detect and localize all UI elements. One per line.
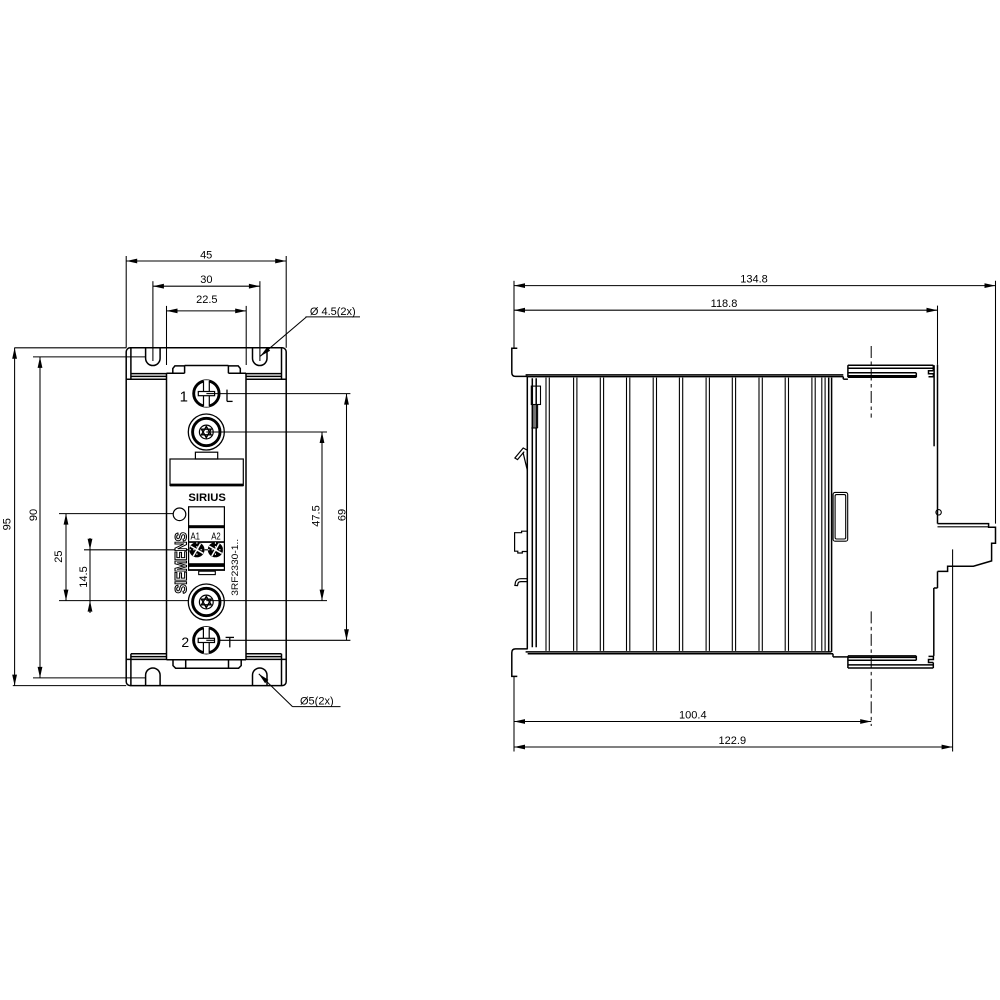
svg-text:14.5: 14.5 (78, 566, 90, 587)
svg-text:47.5: 47.5 (311, 505, 323, 526)
svg-text:118.8: 118.8 (711, 298, 738, 310)
svg-text:SIRIUS: SIRIUS (188, 492, 226, 504)
svg-text:100.4: 100.4 (679, 710, 707, 722)
svg-text:22.5: 22.5 (196, 294, 217, 306)
svg-text:95: 95 (2, 518, 14, 530)
svg-text:1: 1 (180, 389, 188, 406)
svg-text:Ø5(2x): Ø5(2x) (300, 696, 334, 708)
svg-text:122.9: 122.9 (719, 735, 747, 747)
svg-text:3RF2330-1..: 3RF2330-1.. (230, 539, 241, 596)
svg-text:Ø 4.5(2x): Ø 4.5(2x) (310, 306, 356, 318)
svg-text:A1: A1 (190, 532, 200, 543)
svg-text:45: 45 (200, 250, 212, 262)
svg-text:69: 69 (337, 509, 349, 521)
svg-text:90: 90 (28, 509, 40, 521)
svg-text:134.8: 134.8 (740, 274, 768, 286)
svg-text:A2: A2 (211, 532, 221, 543)
svg-text:SIEMENS: SIEMENS (173, 533, 191, 594)
svg-text:25: 25 (53, 550, 65, 562)
svg-text:30: 30 (200, 274, 212, 286)
svg-text:2: 2 (181, 634, 189, 650)
